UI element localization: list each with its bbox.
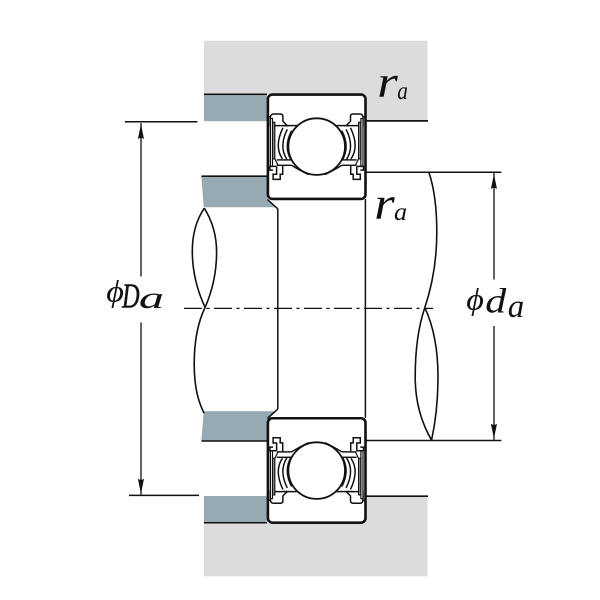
svg-text:a: a: [139, 281, 164, 315]
svg-text:r: r: [374, 177, 395, 228]
svg-text:a: a: [397, 78, 408, 106]
svg-text:r: r: [377, 57, 399, 106]
svg-text:D: D: [121, 276, 140, 315]
svg-text:ϕ: ϕ: [466, 283, 484, 317]
svg-text:a: a: [508, 289, 525, 325]
svg-text:ϕ: ϕ: [106, 275, 124, 309]
svg-text:a: a: [394, 198, 407, 226]
svg-text:d: d: [485, 283, 507, 321]
